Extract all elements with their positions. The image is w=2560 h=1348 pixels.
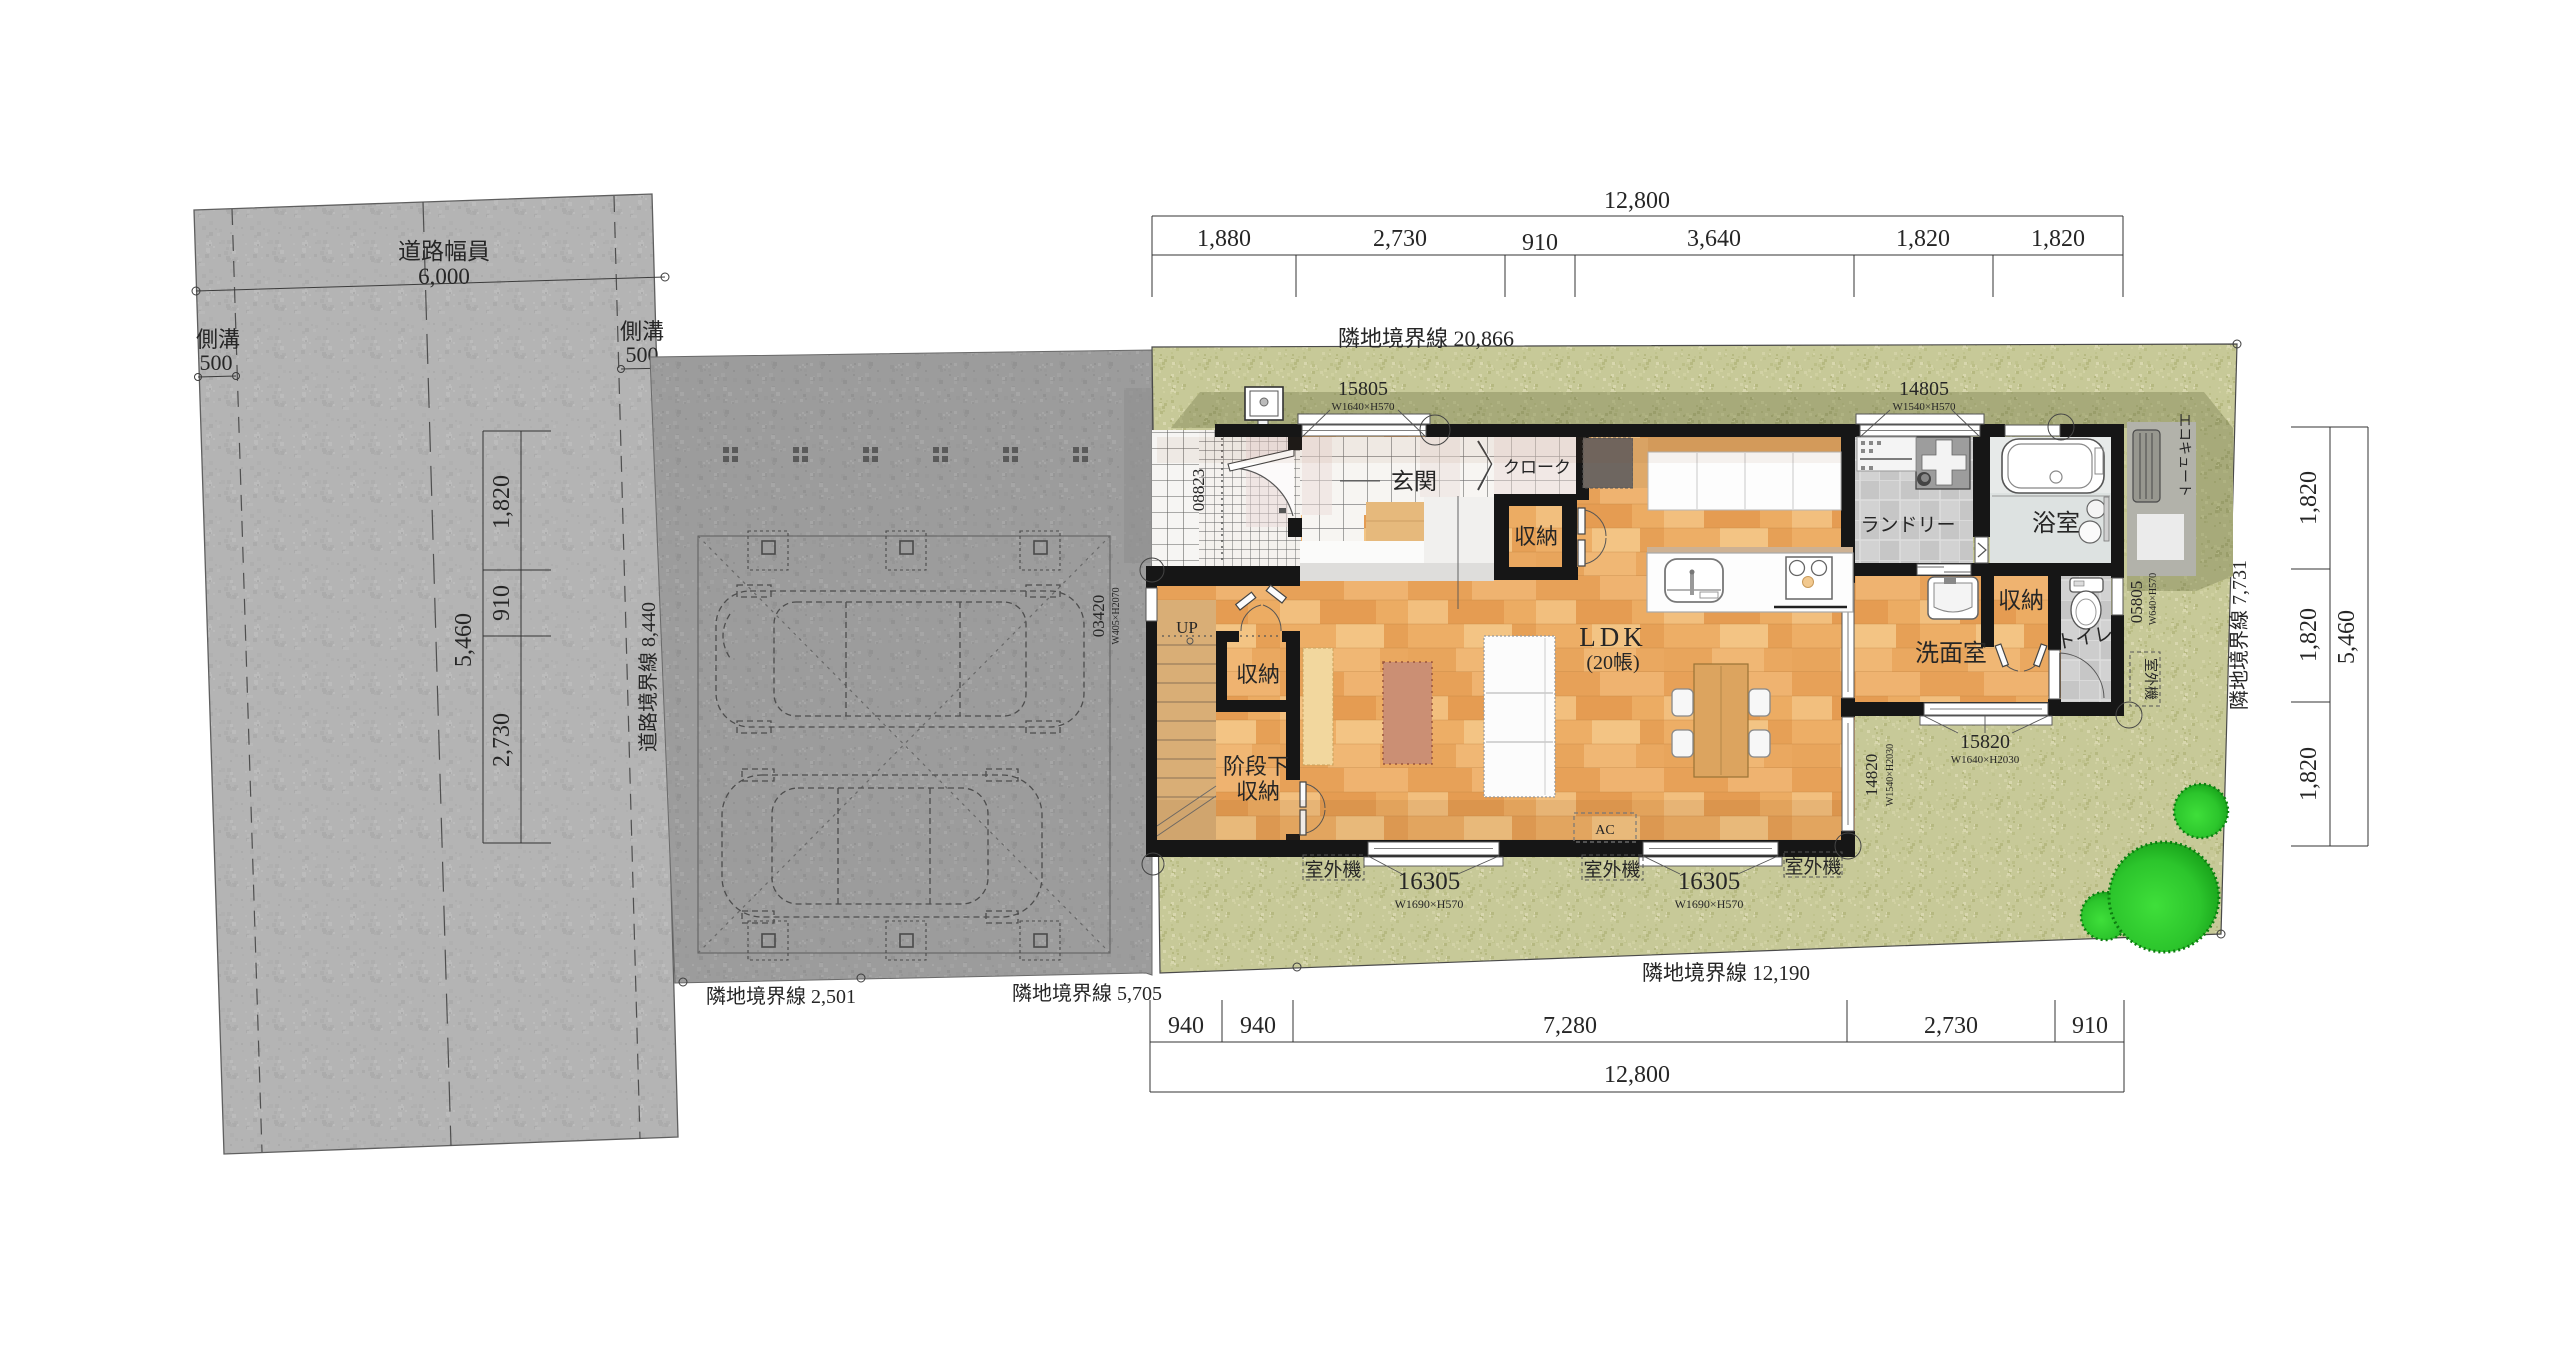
- svg-text:7,280: 7,280: [1543, 1013, 1597, 1039]
- svg-text:940: 940: [1240, 1013, 1276, 1039]
- svg-text:側溝: 側溝: [196, 327, 240, 352]
- svg-text:3,640: 3,640: [1687, 226, 1741, 252]
- svg-text:収納: 収納: [1236, 662, 1280, 687]
- svg-text:910: 910: [2072, 1013, 2108, 1039]
- svg-text:1,820: 1,820: [2296, 471, 2322, 525]
- svg-text:ランドリー: ランドリー: [1860, 515, 1955, 536]
- svg-text:W1690×H570: W1690×H570: [1675, 897, 1744, 911]
- svg-text:W1640×H2030: W1640×H2030: [1951, 754, 2020, 766]
- svg-text:910: 910: [1522, 230, 1558, 256]
- svg-text:室外機: 室外機: [1784, 856, 1841, 878]
- svg-text:隣地境界線 2,501: 隣地境界線 2,501: [706, 985, 856, 1008]
- svg-text:W405×H2070: W405×H2070: [1111, 587, 1122, 644]
- svg-text:玄関: 玄関: [1391, 468, 1437, 494]
- svg-text:側溝: 側溝: [620, 319, 664, 344]
- svg-text:浴室: 浴室: [2032, 510, 2080, 537]
- svg-text:隣地境界線 7,731: 隣地境界線 7,731: [2228, 560, 2251, 710]
- svg-text:15805: 15805: [1338, 378, 1388, 400]
- svg-text:隣地境界線 5,705: 隣地境界線 5,705: [1012, 982, 1162, 1005]
- svg-text:03420: 03420: [1089, 595, 1108, 638]
- svg-text:室外機: 室外機: [1583, 859, 1640, 881]
- svg-text:室外機: 室外機: [1304, 859, 1361, 881]
- svg-text:W640×H570: W640×H570: [2148, 573, 2159, 625]
- svg-text:隣地境界線 12,190: 隣地境界線 12,190: [1642, 961, 1810, 985]
- svg-text:14805: 14805: [1899, 378, 1949, 400]
- svg-text:クローク: クローク: [1503, 458, 1571, 477]
- svg-text:LDK: LDK: [1579, 622, 1647, 652]
- svg-text:W1640×H570: W1640×H570: [1331, 401, 1395, 413]
- svg-text:12,800: 12,800: [1604, 1062, 1670, 1088]
- svg-text:1,820: 1,820: [2031, 226, 2085, 252]
- svg-text:1,820: 1,820: [489, 475, 515, 529]
- svg-text:5,460: 5,460: [451, 613, 477, 667]
- svg-text:910: 910: [489, 585, 515, 621]
- svg-text:道路境界線 8,440: 道路境界線 8,440: [637, 602, 660, 752]
- svg-text:05805: 05805: [2127, 581, 2146, 624]
- svg-text:隣地境界線 20,866: 隣地境界線 20,866: [1338, 326, 1514, 351]
- svg-text:W1540×H570: W1540×H570: [1892, 401, 1956, 413]
- svg-text:2,730: 2,730: [489, 713, 515, 767]
- svg-text:16305: 16305: [1678, 868, 1741, 895]
- svg-text:2,730: 2,730: [1373, 226, 1427, 252]
- svg-text:5,460: 5,460: [2334, 610, 2360, 664]
- svg-text:収納: 収納: [1236, 779, 1280, 804]
- svg-text:エコキュート: エコキュート: [2177, 413, 2193, 497]
- svg-text:12,800: 12,800: [1604, 188, 1670, 214]
- svg-text:収納: 収納: [1998, 587, 2044, 613]
- svg-text:14820: 14820: [1862, 754, 1881, 797]
- svg-text:UP: UP: [1176, 618, 1198, 637]
- svg-text:1,820: 1,820: [2296, 608, 2322, 662]
- svg-text:収納: 収納: [1514, 524, 1558, 549]
- svg-text:940: 940: [1168, 1013, 1204, 1039]
- svg-text:08823: 08823: [1189, 469, 1208, 512]
- svg-text:AC: AC: [1595, 823, 1614, 838]
- svg-text:1,880: 1,880: [1197, 226, 1251, 252]
- svg-text:(20帳): (20帳): [1586, 651, 1639, 674]
- svg-text:阶段下: 阶段下: [1223, 754, 1289, 779]
- svg-text:500: 500: [200, 350, 233, 375]
- svg-text:6,000: 6,000: [418, 264, 470, 289]
- svg-text:15820: 15820: [1960, 731, 2010, 753]
- svg-text:室外機: 室外機: [2143, 658, 2159, 700]
- svg-text:洗面室: 洗面室: [1915, 640, 1987, 667]
- svg-text:1,820: 1,820: [1896, 226, 1950, 252]
- svg-text:W1540×H2030: W1540×H2030: [1885, 744, 1896, 806]
- svg-text:W1690×H570: W1690×H570: [1395, 897, 1464, 911]
- svg-text:道路幅員: 道路幅員: [398, 238, 490, 264]
- svg-text:1,820: 1,820: [2296, 747, 2322, 801]
- svg-text:2,730: 2,730: [1924, 1013, 1978, 1039]
- svg-text:16305: 16305: [1398, 868, 1461, 895]
